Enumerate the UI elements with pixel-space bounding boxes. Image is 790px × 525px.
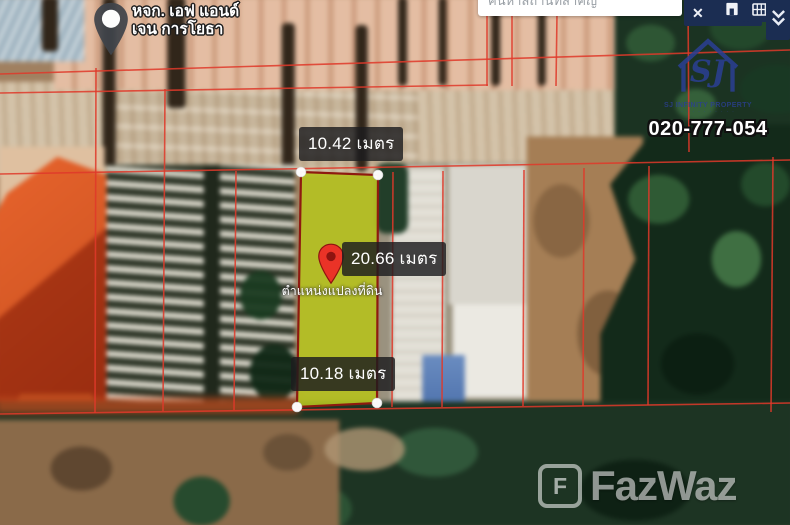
measurement-length: 20.66 เมตร: [342, 242, 446, 276]
cadastral-line: [95, 68, 96, 413]
cadastral-line: [163, 89, 165, 411]
close-icon[interactable]: ✕: [692, 6, 704, 20]
map-layers-button[interactable]: [718, 0, 745, 22]
agency-phone: 020-777-054: [640, 118, 776, 141]
building-icon: [724, 1, 740, 17]
fazwaz-wordmark: FazWaz: [590, 462, 736, 510]
map-viewport[interactable]: หจก. เอฟ แอนด์ เจน การโยธา ✕ 10.42 เมตร: [0, 0, 790, 525]
agency-branding: SJ SJ INFINITY PROPERTY · · · · · · · · …: [640, 34, 776, 141]
poi-pin-icon[interactable]: [92, 0, 130, 58]
cadastral-line: [771, 157, 773, 412]
plot-corner-marker: [292, 402, 302, 412]
measurement-bottom-width: 10.18 เมตร: [291, 357, 395, 391]
cadastral-line: [0, 85, 488, 93]
cadastral-line: [556, 14, 557, 86]
cadastral-line: [442, 171, 443, 407]
plot-pin-icon[interactable]: [317, 243, 345, 285]
poi-label-line2: เจน การโยธา: [132, 21, 239, 39]
search-bar: [478, 0, 682, 16]
fazwaz-logo-icon: F: [538, 464, 582, 508]
cadastral-line: [0, 403, 790, 414]
plot-corner-marker: [373, 170, 383, 180]
agency-name: SJ INFINITY PROPERTY: [640, 102, 776, 109]
house-logo-icon: SJ: [669, 34, 747, 96]
measurement-top-width: 10.42 เมตร: [299, 127, 403, 161]
poi-label: หจก. เอฟ แอนด์ เจน การโยธา: [132, 3, 239, 40]
chevron-double-down-icon: [771, 9, 786, 28]
agency-tagline: · · · · · · · · · ·: [640, 109, 776, 115]
fazwaz-watermark: F FazWaz: [538, 462, 736, 510]
plot-caption: ตำแหน่งแปลงที่ดิน: [266, 281, 398, 301]
search-input[interactable]: [478, 0, 682, 8]
cadastral-line: [0, 160, 790, 174]
logo-monogram: SJ: [690, 55, 728, 90]
poi-label-line1: หจก. เอฟ แอนด์: [132, 3, 239, 21]
cadastral-line: [234, 171, 236, 410]
plot-corner-marker: [296, 167, 306, 177]
cadastral-line: [583, 168, 584, 406]
cadastral-line: [648, 166, 649, 405]
cadastral-line: [523, 170, 524, 406]
plot-corner-marker: [372, 398, 382, 408]
